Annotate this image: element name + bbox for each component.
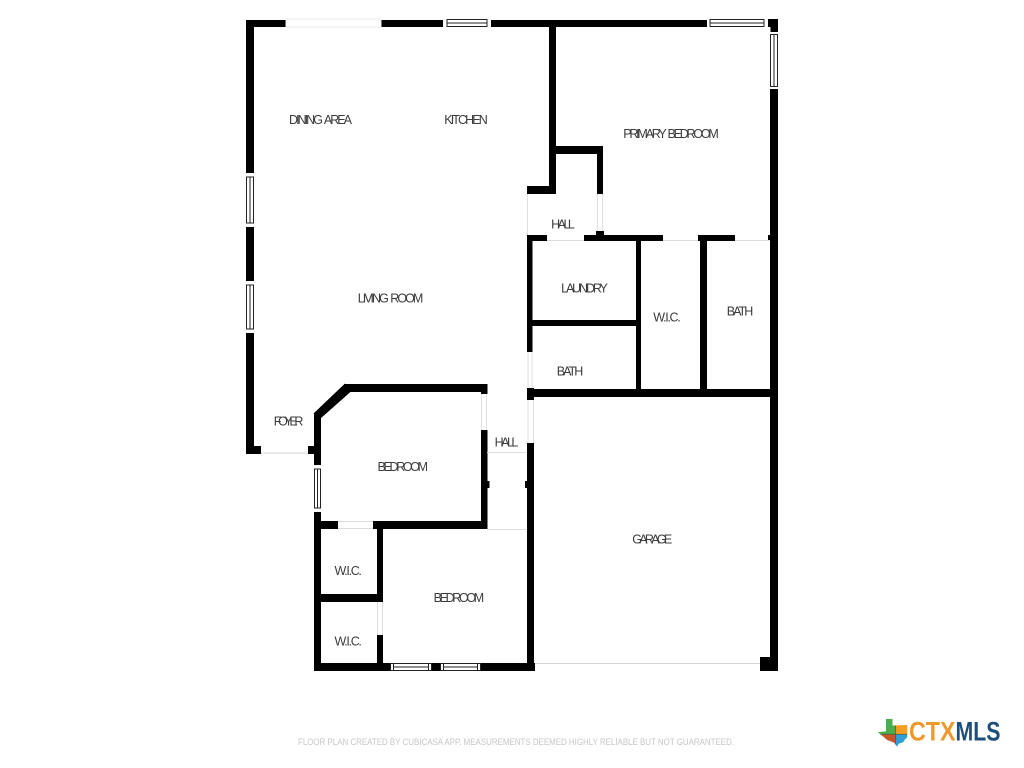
- svg-text:CTX: CTX: [909, 717, 956, 747]
- svg-text:LIVING ROOM: LIVING ROOM: [358, 291, 424, 305]
- svg-text:BATH: BATH: [727, 305, 754, 319]
- svg-text:MLS: MLS: [956, 717, 1001, 747]
- svg-text:DINING AREA: DINING AREA: [289, 113, 353, 127]
- svg-text:W.I.C.: W.I.C.: [653, 311, 680, 325]
- svg-text:PRIMARY BEDROOM: PRIMARY BEDROOM: [623, 127, 719, 141]
- svg-text:LAUNDRY: LAUNDRY: [561, 282, 608, 296]
- svg-text:BEDROOM: BEDROOM: [378, 460, 429, 474]
- svg-text:KITCHEN: KITCHEN: [444, 113, 488, 127]
- svg-text:BATH: BATH: [557, 364, 584, 378]
- svg-text:BEDROOM: BEDROOM: [434, 591, 485, 605]
- svg-text:FOYER: FOYER: [274, 415, 304, 429]
- svg-text:GARAGE: GARAGE: [632, 533, 672, 547]
- svg-text:FLOOR PLAN CREATED BY CUBICASA: FLOOR PLAN CREATED BY CUBICASA APP. MEAS…: [298, 737, 734, 747]
- svg-text:HALL: HALL: [551, 218, 575, 232]
- svg-text:W.I.C.: W.I.C.: [335, 564, 362, 578]
- svg-text:HALL: HALL: [495, 435, 519, 449]
- svg-text:W.I.C.: W.I.C.: [335, 635, 362, 649]
